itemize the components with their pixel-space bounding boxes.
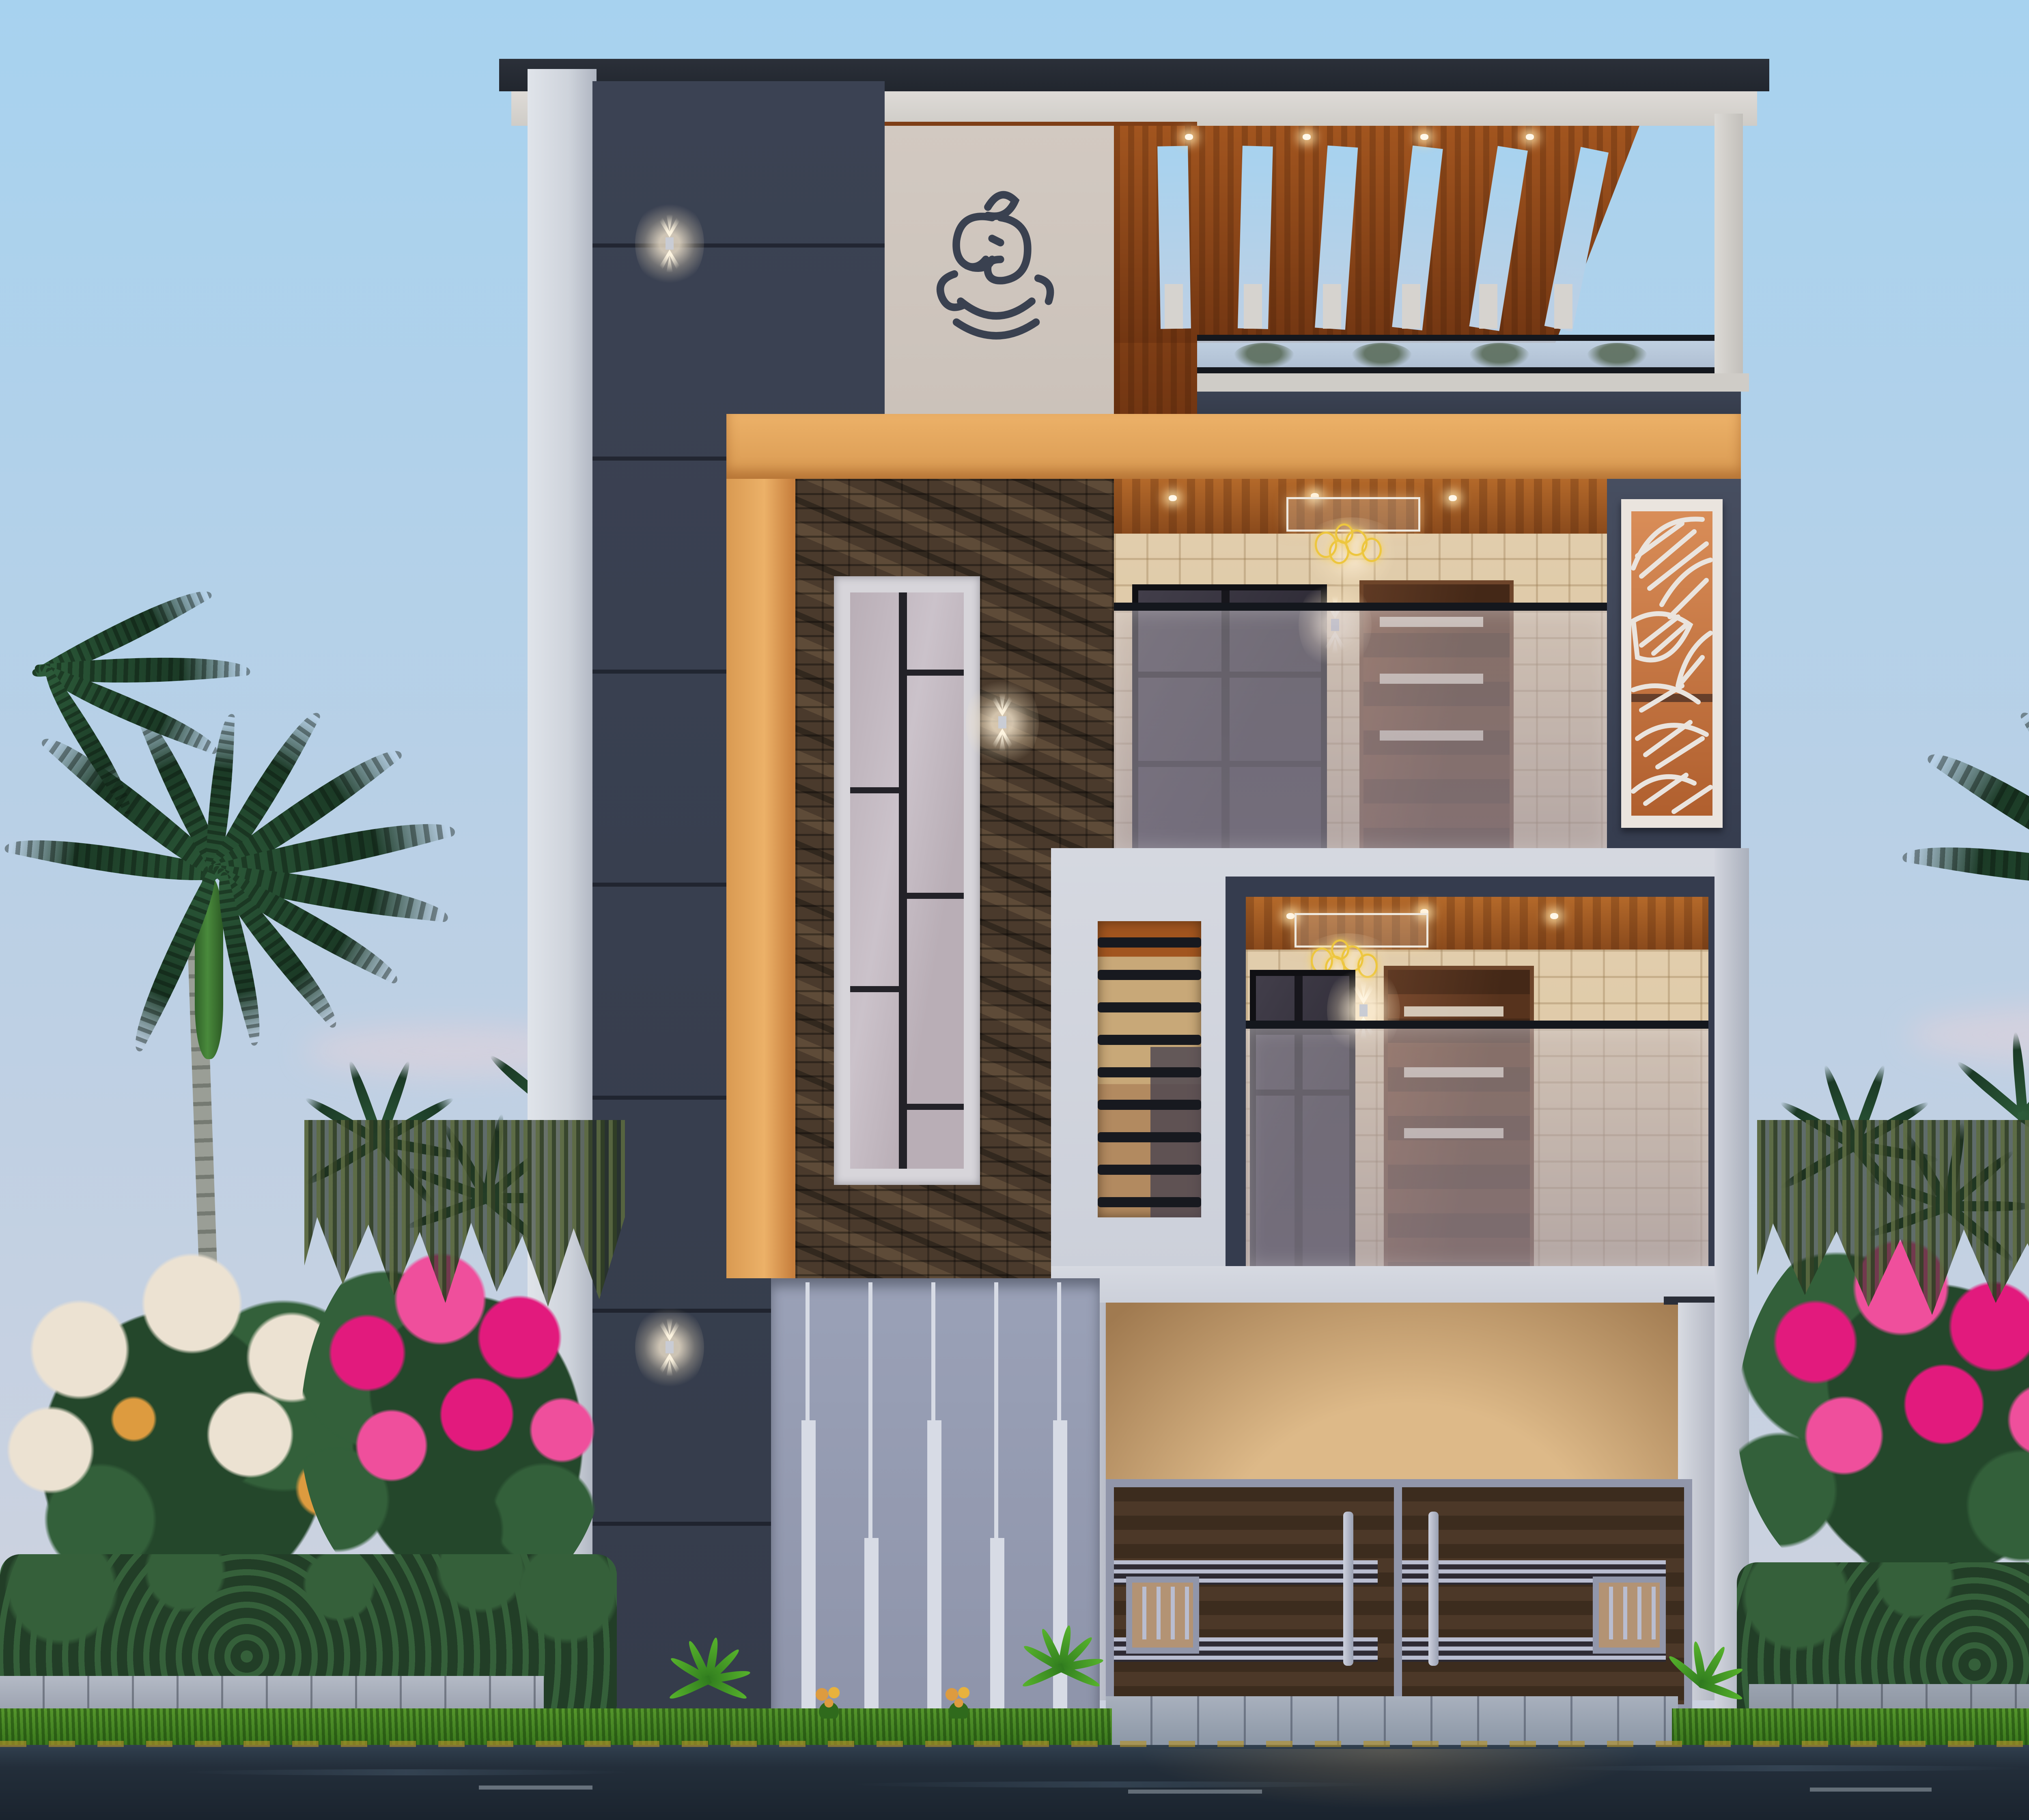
ganesha-emblem bbox=[929, 179, 1063, 361]
porch-light-reflection bbox=[1136, 1749, 1643, 1810]
terrace-coping bbox=[1197, 373, 1749, 392]
road-reflection bbox=[183, 1769, 629, 1775]
render-viewport bbox=[0, 0, 2029, 1820]
lane-mark-reflection bbox=[1810, 1788, 1932, 1792]
railing-post bbox=[1165, 284, 1183, 329]
window-mullion bbox=[850, 787, 899, 794]
marigold-cluster bbox=[941, 1684, 976, 1719]
balustrade-rail bbox=[1114, 603, 1607, 611]
lower-balcony-glass-balustrade bbox=[1246, 1029, 1708, 1266]
lane-mark-reflection bbox=[1128, 1790, 1262, 1794]
recessed-light bbox=[1526, 134, 1533, 139]
road-edge-line bbox=[0, 1741, 2029, 1747]
orange-frame-left bbox=[726, 479, 795, 1278]
parapet-navy-strip bbox=[1197, 392, 1741, 414]
railing-post bbox=[1244, 284, 1262, 329]
pilaster-rod bbox=[931, 1282, 936, 1420]
pilaster bbox=[801, 1420, 816, 1717]
railing-post bbox=[1554, 284, 1572, 329]
marigold-cluster bbox=[812, 1684, 846, 1719]
pilaster-rod bbox=[868, 1282, 873, 1538]
recessed-light bbox=[1286, 913, 1294, 918]
gate-handle bbox=[1343, 1512, 1353, 1666]
recessed-light bbox=[1449, 495, 1456, 500]
window-mullion bbox=[899, 592, 907, 1169]
plant-silhouette bbox=[1469, 343, 1530, 369]
recessed-light bbox=[1169, 495, 1176, 500]
railing-post bbox=[1323, 284, 1341, 329]
window-mullion bbox=[907, 670, 964, 676]
recessed-light bbox=[1303, 134, 1310, 139]
railing-top-rail bbox=[1197, 335, 1739, 342]
terrace-corner-post bbox=[1715, 114, 1743, 373]
window-mullion bbox=[907, 893, 964, 900]
pilaster-rod bbox=[806, 1282, 810, 1420]
pilaster-rod bbox=[994, 1282, 999, 1538]
leaf-jali-frame bbox=[1621, 499, 1723, 828]
pilaster bbox=[927, 1420, 941, 1717]
railing-post bbox=[1479, 284, 1497, 329]
plant-silhouette bbox=[1587, 343, 1648, 369]
window-mullion bbox=[850, 986, 899, 993]
pilaster bbox=[990, 1538, 1004, 1717]
railing-base-rail bbox=[1197, 367, 1739, 373]
pilaster bbox=[864, 1538, 879, 1717]
plant-silhouette bbox=[1234, 343, 1295, 369]
balustrade-rail bbox=[1246, 1021, 1708, 1029]
window-mullion bbox=[907, 1104, 964, 1111]
gate-handle bbox=[1428, 1512, 1438, 1666]
orange-frame-top bbox=[726, 414, 1741, 479]
garage-gate-right bbox=[1394, 1479, 1692, 1712]
recessed-light bbox=[1420, 134, 1428, 139]
plant-silhouette bbox=[1351, 343, 1412, 369]
porch-beam bbox=[1051, 1266, 1749, 1303]
railing-post bbox=[1402, 284, 1420, 329]
tall-window-glass bbox=[850, 592, 964, 1169]
recessed-light bbox=[1550, 913, 1557, 918]
pilaster-rod bbox=[1057, 1282, 1062, 1420]
recessed-light bbox=[1185, 134, 1192, 139]
lane-mark-reflection bbox=[479, 1786, 592, 1790]
louver-window bbox=[1098, 921, 1201, 1217]
upper-balcony-glass-balustrade bbox=[1114, 611, 1607, 848]
garage-gate-left bbox=[1106, 1479, 1404, 1712]
